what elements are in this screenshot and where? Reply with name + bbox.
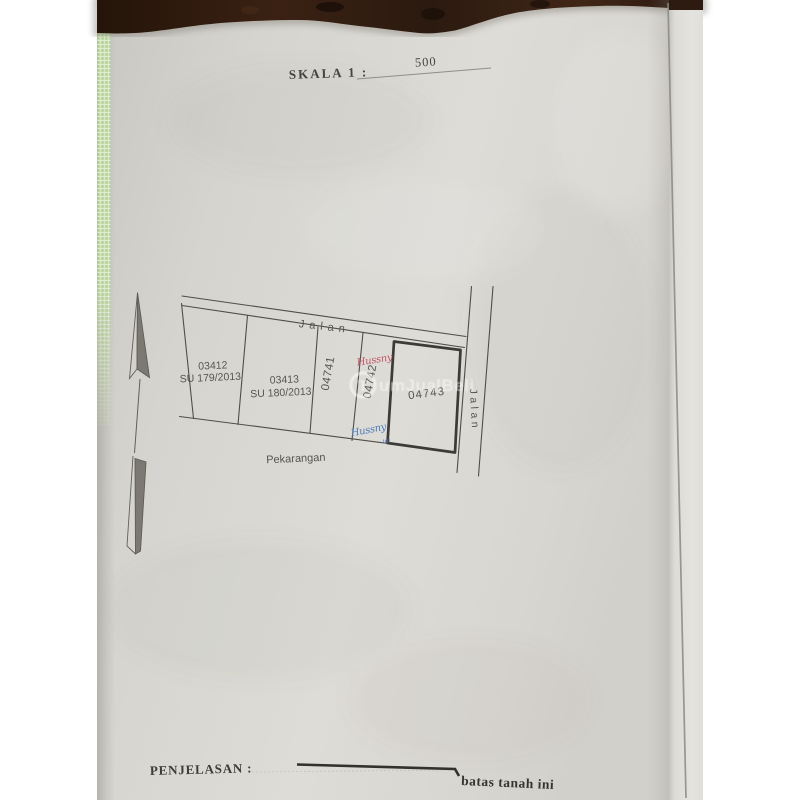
wood-top-right-sliver xyxy=(669,0,703,10)
scale-value: 500 xyxy=(415,54,437,69)
scale-label: SKALA 1 : xyxy=(289,64,369,82)
document-photo: SKALA 1 : 500 Jalan Jalan 03412 SU 179/2… xyxy=(0,0,800,800)
watermark-logo-letter: T xyxy=(358,378,369,395)
blue-handwriting-small: im xyxy=(382,436,392,445)
binder-edge-green xyxy=(98,24,111,426)
watermark-text: umJualBeli xyxy=(379,376,475,395)
page-right-strip xyxy=(669,0,703,800)
parcel-03413-number: 03413 xyxy=(270,373,300,386)
screenshot-canvas: SKALA 1 : 500 Jalan Jalan 03412 SU 179/2… xyxy=(0,0,800,800)
legend-label: PENJELASAN : xyxy=(150,760,253,778)
crease-shadow xyxy=(648,0,669,800)
